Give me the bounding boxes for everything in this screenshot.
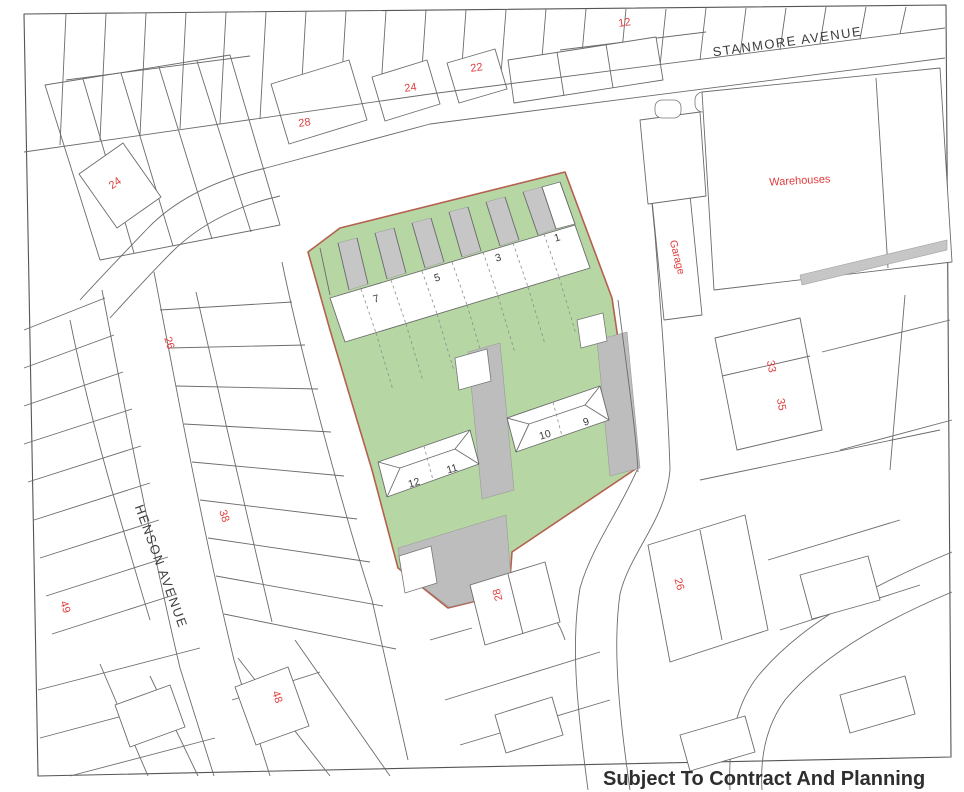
map-geometry <box>52 594 177 634</box>
plot-number-49: 49 <box>57 599 72 614</box>
map-geometry <box>208 538 370 562</box>
disclaimer-text: Subject To Contract And Planning <box>603 768 925 790</box>
house-outline <box>495 697 563 753</box>
parcel-grid-east <box>715 295 952 470</box>
house-outline <box>115 685 185 747</box>
site-plan-document: STANMORE AVENUE HENSON AVENUE Warehouses… <box>0 0 964 792</box>
map-geometry <box>24 335 114 368</box>
map-geometry <box>575 470 637 790</box>
plot-number-22: 22 <box>470 61 484 75</box>
map-geometry <box>34 483 150 520</box>
map-geometry <box>220 12 226 124</box>
plot-number-26-henson: 26 <box>161 335 176 350</box>
map-geometry <box>45 55 280 260</box>
street-label-henson: HENSON AVENUE <box>132 503 191 631</box>
map-geometry <box>700 8 706 60</box>
house-outline <box>800 556 880 619</box>
map-geometry <box>176 386 318 389</box>
plot-number-24: 24 <box>404 81 418 95</box>
warehouse-block <box>640 68 952 320</box>
parcel-grid-southeast <box>648 430 952 790</box>
map-geometry <box>60 13 66 145</box>
parcel-grid-bottom-left <box>38 640 390 776</box>
map-geometry <box>890 295 905 470</box>
plot-number-33: 33 <box>764 359 778 373</box>
parcel-grid-henson-west <box>24 298 177 634</box>
map-geometry <box>24 409 132 444</box>
map-geometry <box>430 628 472 640</box>
small-building <box>640 112 706 204</box>
plot-number-26-southeast: 26 <box>672 577 687 592</box>
map-geometry <box>822 320 950 352</box>
map-geometry <box>70 320 150 620</box>
map-geometry <box>24 372 123 406</box>
plot-number-28: 28 <box>298 116 312 130</box>
map-geometry <box>700 430 940 480</box>
map-geometry <box>224 614 396 649</box>
map-geometry <box>900 7 906 34</box>
map-geometry <box>180 12 186 129</box>
map-geometry <box>655 100 681 118</box>
map-geometry <box>159 67 212 239</box>
house-22-outline <box>447 49 507 103</box>
map-geometry <box>768 520 900 560</box>
map-geometry <box>648 515 768 662</box>
map-geometry <box>70 738 215 776</box>
map-geometry <box>24 298 105 330</box>
map-geometry <box>192 462 344 476</box>
map-geometry <box>260 12 266 119</box>
map-geometry <box>216 576 383 606</box>
map-geometry <box>197 61 251 232</box>
plot-number-35: 35 <box>774 397 788 411</box>
development-site <box>308 172 640 608</box>
map-geometry <box>168 345 305 348</box>
map-geometry <box>184 424 331 432</box>
parcel-grid-top-left <box>45 55 280 318</box>
map-geometry <box>160 302 292 310</box>
map-geometry <box>38 648 200 690</box>
map-geometry <box>700 530 722 640</box>
site-plan-map: STANMORE AVENUE HENSON AVENUE Warehouses… <box>0 0 964 792</box>
map-geometry <box>840 420 952 450</box>
map-geometry <box>28 446 141 482</box>
map-geometry <box>445 652 600 700</box>
map-geometry <box>46 557 168 596</box>
map-geometry <box>140 13 146 135</box>
house-28-outline <box>271 60 367 144</box>
house-outline <box>840 676 915 733</box>
map-geometry <box>295 640 390 776</box>
map-geometry <box>617 235 670 790</box>
map-geometry <box>100 13 106 140</box>
map-geometry <box>196 292 272 622</box>
map-geometry <box>715 318 822 450</box>
plot-number-12-north: 12 <box>618 16 632 30</box>
house-outline <box>680 716 755 771</box>
plot-number-38: 38 <box>216 508 231 523</box>
street-label-stanmore: STANMORE AVENUE <box>712 24 863 60</box>
